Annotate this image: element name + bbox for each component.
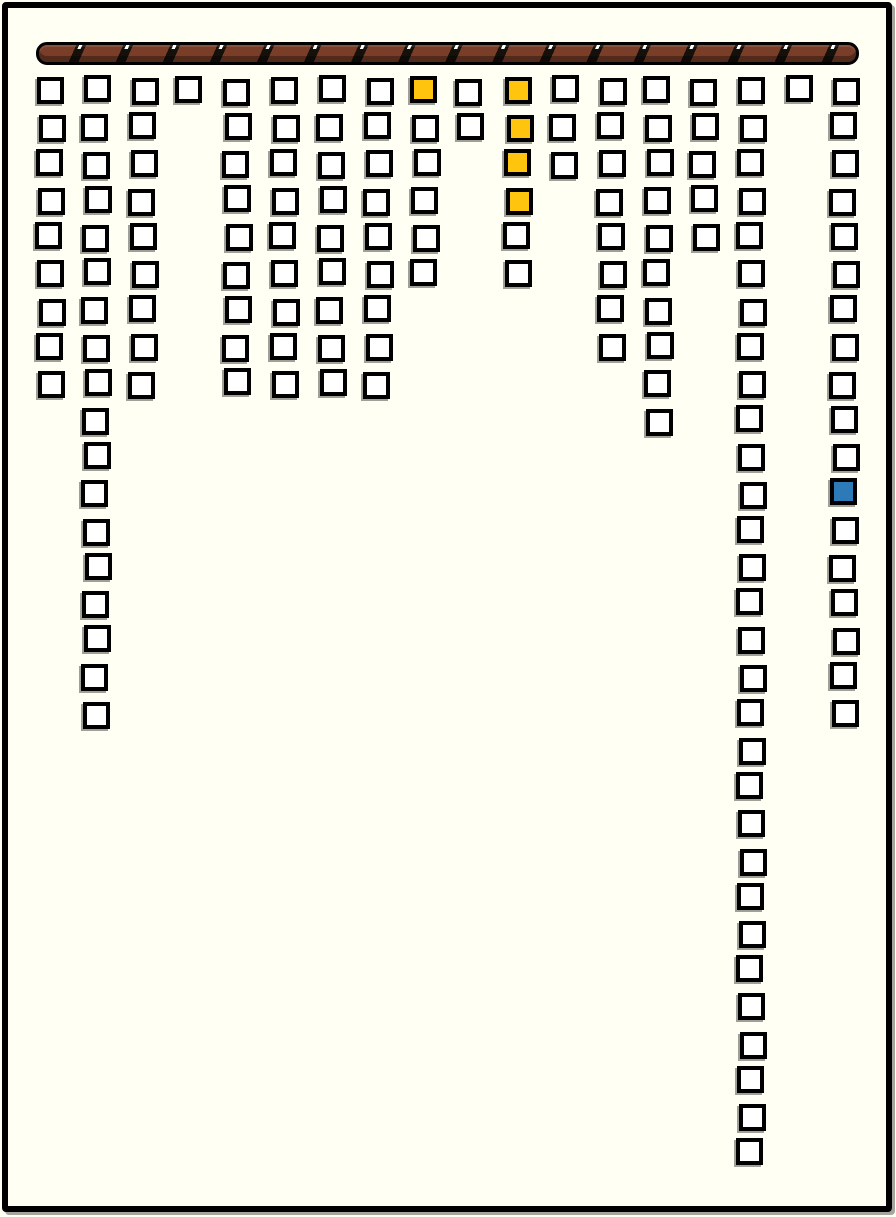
cell[interactable]	[737, 149, 764, 176]
cell[interactable]	[36, 333, 63, 360]
cell[interactable]	[35, 222, 62, 249]
cell[interactable]	[600, 261, 627, 288]
cell[interactable]	[85, 369, 112, 396]
cell[interactable]	[693, 224, 720, 251]
cell[interactable]	[84, 258, 111, 285]
cell[interactable]	[364, 295, 391, 322]
cell[interactable]	[597, 112, 624, 139]
cell[interactable]	[689, 151, 716, 178]
cell[interactable]	[829, 372, 856, 399]
cell[interactable]	[736, 588, 763, 615]
cell-blue[interactable]	[830, 478, 857, 505]
cell[interactable]	[738, 260, 765, 287]
cell[interactable]	[552, 75, 579, 102]
cell[interactable]	[599, 150, 626, 177]
cell[interactable]	[366, 150, 393, 177]
cell[interactable]	[37, 77, 64, 104]
cell[interactable]	[410, 259, 437, 286]
cell[interactable]	[644, 370, 671, 397]
cell[interactable]	[319, 75, 346, 102]
cell[interactable]	[740, 1032, 767, 1059]
cell[interactable]	[319, 258, 346, 285]
cell[interactable]	[737, 883, 764, 910]
cell[interactable]	[833, 444, 860, 471]
cell[interactable]	[364, 112, 391, 139]
cell[interactable]	[647, 332, 674, 359]
cell[interactable]	[83, 152, 110, 179]
cell[interactable]	[738, 627, 765, 654]
cell[interactable]	[81, 664, 108, 691]
cell[interactable]	[131, 150, 158, 177]
cell[interactable]	[833, 628, 860, 655]
cell[interactable]	[273, 299, 300, 326]
cell[interactable]	[81, 297, 108, 324]
cell[interactable]	[738, 444, 765, 471]
cell[interactable]	[83, 335, 110, 362]
cell[interactable]	[318, 335, 345, 362]
cell[interactable]	[551, 152, 578, 179]
cell[interactable]	[82, 225, 109, 252]
cell[interactable]	[83, 519, 110, 546]
cell[interactable]	[737, 333, 764, 360]
cell[interactable]	[81, 480, 108, 507]
cell[interactable]	[367, 78, 394, 105]
cell[interactable]	[692, 113, 719, 140]
cell-yellow[interactable]	[410, 76, 437, 103]
cell[interactable]	[738, 810, 765, 837]
cell[interactable]	[366, 334, 393, 361]
cell[interactable]	[317, 225, 344, 252]
cell[interactable]	[645, 298, 672, 325]
cell[interactable]	[129, 295, 156, 322]
cell[interactable]	[222, 151, 249, 178]
cell-yellow[interactable]	[506, 188, 533, 215]
cell[interactable]	[316, 297, 343, 324]
cell[interactable]	[832, 700, 859, 727]
cell[interactable]	[736, 955, 763, 982]
cell[interactable]	[738, 993, 765, 1020]
cell[interactable]	[643, 76, 670, 103]
cell[interactable]	[85, 553, 112, 580]
cell[interactable]	[271, 77, 298, 104]
cell-yellow[interactable]	[507, 115, 534, 142]
cell[interactable]	[129, 112, 156, 139]
cell[interactable]	[455, 79, 482, 106]
cell[interactable]	[270, 333, 297, 360]
cell[interactable]	[38, 188, 65, 215]
cell[interactable]	[132, 261, 159, 288]
cell[interactable]	[597, 295, 624, 322]
cell[interactable]	[740, 115, 767, 142]
cell[interactable]	[644, 187, 671, 214]
cell[interactable]	[599, 334, 626, 361]
cell[interactable]	[739, 921, 766, 948]
cell[interactable]	[363, 372, 390, 399]
cell[interactable]	[84, 625, 111, 652]
cell[interactable]	[318, 152, 345, 179]
cell[interactable]	[832, 150, 859, 177]
cell[interactable]	[413, 225, 440, 252]
cell[interactable]	[130, 223, 157, 250]
cell[interactable]	[316, 114, 343, 141]
cell[interactable]	[273, 115, 300, 142]
cell[interactable]	[224, 185, 251, 212]
page-background	[0, 0, 896, 1217]
cell[interactable]	[82, 591, 109, 618]
cell[interactable]	[128, 189, 155, 216]
cell[interactable]	[736, 405, 763, 432]
cell[interactable]	[740, 849, 767, 876]
cell[interactable]	[739, 738, 766, 765]
cell[interactable]	[367, 261, 394, 288]
cell[interactable]	[646, 225, 673, 252]
cell[interactable]	[786, 75, 813, 102]
cell[interactable]	[645, 115, 672, 142]
cell[interactable]	[549, 114, 576, 141]
cell[interactable]	[83, 702, 110, 729]
cell[interactable]	[647, 149, 674, 176]
cell[interactable]	[739, 371, 766, 398]
cell-yellow[interactable]	[504, 149, 531, 176]
cell-yellow[interactable]	[505, 77, 532, 104]
cell[interactable]	[830, 662, 857, 689]
cell[interactable]	[738, 77, 765, 104]
cell[interactable]	[223, 262, 250, 289]
cell[interactable]	[739, 554, 766, 581]
cell[interactable]	[737, 516, 764, 543]
cell[interactable]	[222, 335, 249, 362]
cell[interactable]	[737, 1066, 764, 1093]
cell[interactable]	[414, 149, 441, 176]
cell[interactable]	[38, 371, 65, 398]
cell[interactable]	[39, 115, 66, 142]
cell[interactable]	[223, 79, 250, 106]
cell[interactable]	[320, 186, 347, 213]
cell[interactable]	[830, 112, 857, 139]
cell[interactable]	[132, 78, 159, 105]
cell[interactable]	[503, 222, 530, 249]
cell[interactable]	[225, 296, 252, 323]
cell[interactable]	[225, 113, 252, 140]
cell[interactable]	[175, 76, 202, 103]
cell[interactable]	[739, 1104, 766, 1131]
cell[interactable]	[596, 189, 623, 216]
cell[interactable]	[37, 260, 64, 287]
cell[interactable]	[131, 334, 158, 361]
cell[interactable]	[829, 189, 856, 216]
cell[interactable]	[691, 185, 718, 212]
cell[interactable]	[831, 223, 858, 250]
cell[interactable]	[831, 406, 858, 433]
cell[interactable]	[224, 368, 251, 395]
cell[interactable]	[272, 188, 299, 215]
cell[interactable]	[39, 299, 66, 326]
cell[interactable]	[85, 186, 112, 213]
cell[interactable]	[84, 442, 111, 469]
cell[interactable]	[363, 189, 390, 216]
cell[interactable]	[128, 372, 155, 399]
cell[interactable]	[598, 223, 625, 250]
cell[interactable]	[736, 222, 763, 249]
cell[interactable]	[272, 371, 299, 398]
cell[interactable]	[832, 517, 859, 544]
cell[interactable]	[226, 224, 253, 251]
cell[interactable]	[365, 223, 392, 250]
cell[interactable]	[36, 149, 63, 176]
cell[interactable]	[740, 665, 767, 692]
cell[interactable]	[830, 295, 857, 322]
cell[interactable]	[600, 78, 627, 105]
cell[interactable]	[740, 482, 767, 509]
cell[interactable]	[320, 369, 347, 396]
cell[interactable]	[736, 1138, 763, 1165]
cell[interactable]	[831, 589, 858, 616]
cell[interactable]	[740, 299, 767, 326]
cell[interactable]	[505, 260, 532, 287]
cell[interactable]	[84, 75, 111, 102]
striped-rod	[36, 42, 859, 65]
cell[interactable]	[81, 114, 108, 141]
cell[interactable]	[833, 261, 860, 288]
cell[interactable]	[646, 409, 673, 436]
cell[interactable]	[833, 78, 860, 105]
cell[interactable]	[412, 115, 439, 142]
cell[interactable]	[270, 149, 297, 176]
cell[interactable]	[271, 260, 298, 287]
cell[interactable]	[82, 408, 109, 435]
cell[interactable]	[269, 222, 296, 249]
cell[interactable]	[457, 113, 484, 140]
cell[interactable]	[737, 699, 764, 726]
cell[interactable]	[690, 79, 717, 106]
cell[interactable]	[736, 772, 763, 799]
cell[interactable]	[739, 188, 766, 215]
cell[interactable]	[643, 259, 670, 286]
cell[interactable]	[832, 334, 859, 361]
cell[interactable]	[829, 555, 856, 582]
cell[interactable]	[411, 187, 438, 214]
